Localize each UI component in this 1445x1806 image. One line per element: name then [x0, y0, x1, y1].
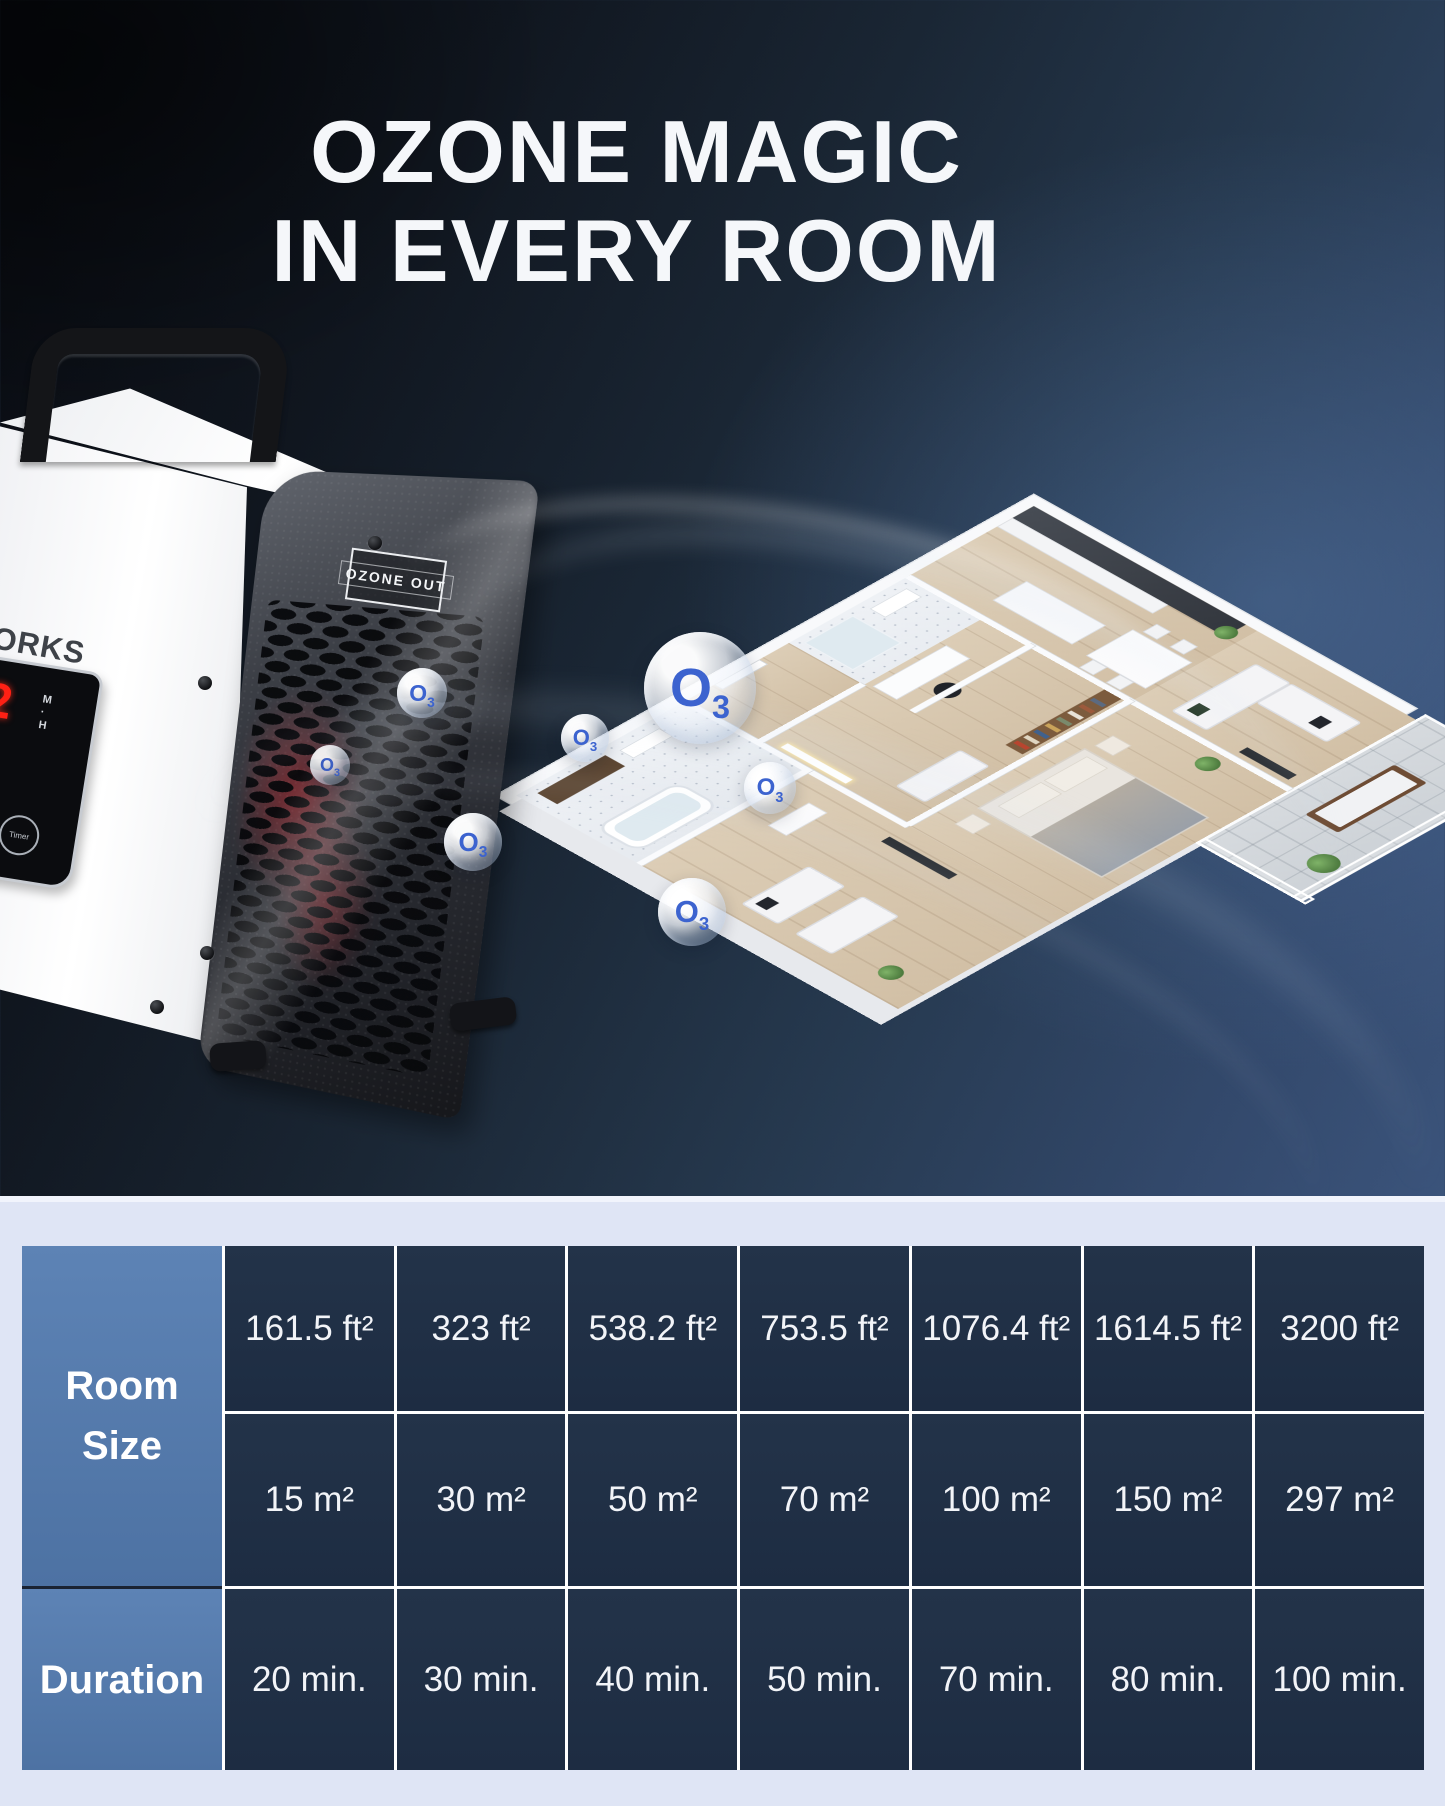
- nightstand: [1095, 735, 1132, 756]
- timer-digit-display: 2: [0, 673, 18, 731]
- sink: [619, 728, 673, 758]
- room-size-metric: 50 m²: [568, 1414, 737, 1586]
- timer-button-label: Timer: [8, 829, 29, 841]
- ozone-bubble: O3: [658, 878, 726, 946]
- ozone-3: 3: [590, 739, 597, 754]
- ozone-o: O: [573, 725, 590, 751]
- outdoor-bench: [1305, 765, 1427, 833]
- room-size-metric: 30 m²: [397, 1414, 566, 1586]
- room-size-table: Room Size 161.5 ft² 323 ft² 538.2 ft² 75…: [22, 1246, 1424, 1770]
- room-size-table-section: Room Size 161.5 ft² 323 ft² 538.2 ft² 75…: [0, 1196, 1445, 1806]
- room-size-metric: 70 m²: [740, 1414, 909, 1586]
- device-handle: [20, 328, 292, 462]
- ozone-out-text: OZONE OUT: [338, 560, 453, 600]
- minute-hour-indicators: M · H: [38, 693, 53, 733]
- balcony-railing: [1195, 837, 1315, 904]
- ozone-3: 3: [334, 767, 340, 779]
- title-line-1: OZONE MAGIC: [0, 102, 1359, 201]
- ozone-3: 3: [712, 689, 730, 726]
- ozone-3: 3: [479, 844, 488, 862]
- ozone-bubble: O3: [744, 762, 796, 814]
- ozone-o: O: [675, 894, 699, 930]
- duration-value: 30 min.: [397, 1589, 566, 1770]
- room-size-imperial: 323 ft²: [397, 1246, 566, 1411]
- ozone-o: O: [320, 755, 334, 776]
- vanity: [537, 755, 625, 804]
- screw: [198, 676, 212, 690]
- title-line-2: IN EVERY ROOM: [0, 201, 1359, 300]
- duration-value: 40 min.: [568, 1589, 737, 1770]
- nightstand: [955, 814, 992, 835]
- duration-value: 20 min.: [225, 1589, 394, 1770]
- timer-button[interactable]: Timer: [0, 812, 42, 858]
- plant: [873, 962, 910, 983]
- room-size-metric: 15 m²: [225, 1414, 394, 1586]
- duration-header-label: Duration: [40, 1650, 204, 1710]
- ozone-bubble: O3: [397, 668, 447, 718]
- room-size-imperial: 1076.4 ft²: [912, 1246, 1081, 1411]
- ozone-bubble: O3: [644, 632, 756, 744]
- room-size-imperial: 3200 ft²: [1255, 1246, 1424, 1411]
- ozone-bubble: O3: [444, 813, 502, 871]
- room-size-header: Room Size: [22, 1246, 222, 1586]
- room-size-metric: 297 m²: [1255, 1414, 1424, 1586]
- ozone-3: 3: [699, 913, 709, 935]
- room-size-imperial: 753.5 ft²: [740, 1246, 909, 1411]
- ozone-o: O: [459, 827, 479, 858]
- duration-value: 80 min.: [1084, 1589, 1253, 1770]
- room-size-header-line1: Room: [65, 1356, 178, 1416]
- room-size-imperial: 1614.5 ft²: [1084, 1246, 1253, 1411]
- ozone-o: O: [757, 774, 776, 802]
- duration-header: Duration: [22, 1589, 222, 1770]
- room-size-imperial: 161.5 ft²: [225, 1246, 394, 1411]
- screw: [200, 946, 214, 960]
- ozone-3: 3: [775, 790, 783, 806]
- ozone-o: O: [409, 680, 427, 707]
- duration-value: 100 min.: [1255, 1589, 1424, 1770]
- plant: [1189, 754, 1226, 775]
- room-size-metric: 100 m²: [912, 1414, 1081, 1586]
- device-foot: [209, 1040, 267, 1072]
- duration-value: 50 min.: [740, 1589, 909, 1770]
- floor-plan: [496, 495, 1415, 1009]
- sink: [870, 588, 922, 617]
- ozone-3: 3: [427, 695, 435, 710]
- hours-label: H: [38, 719, 49, 733]
- room-size-imperial: 538.2 ft²: [568, 1246, 737, 1411]
- ozone-bubble: O3: [561, 714, 609, 762]
- screw: [150, 1000, 164, 1014]
- ozone-bubble: O3: [310, 745, 350, 785]
- page-title: OZONE MAGIC IN EVERY ROOM: [0, 102, 1359, 301]
- room-size-metric: 150 m²: [1084, 1414, 1253, 1586]
- room-size-header-line2: Size: [82, 1416, 162, 1476]
- screw: [368, 536, 382, 550]
- ozone-o: O: [670, 657, 712, 719]
- duration-value: 70 min.: [912, 1589, 1081, 1770]
